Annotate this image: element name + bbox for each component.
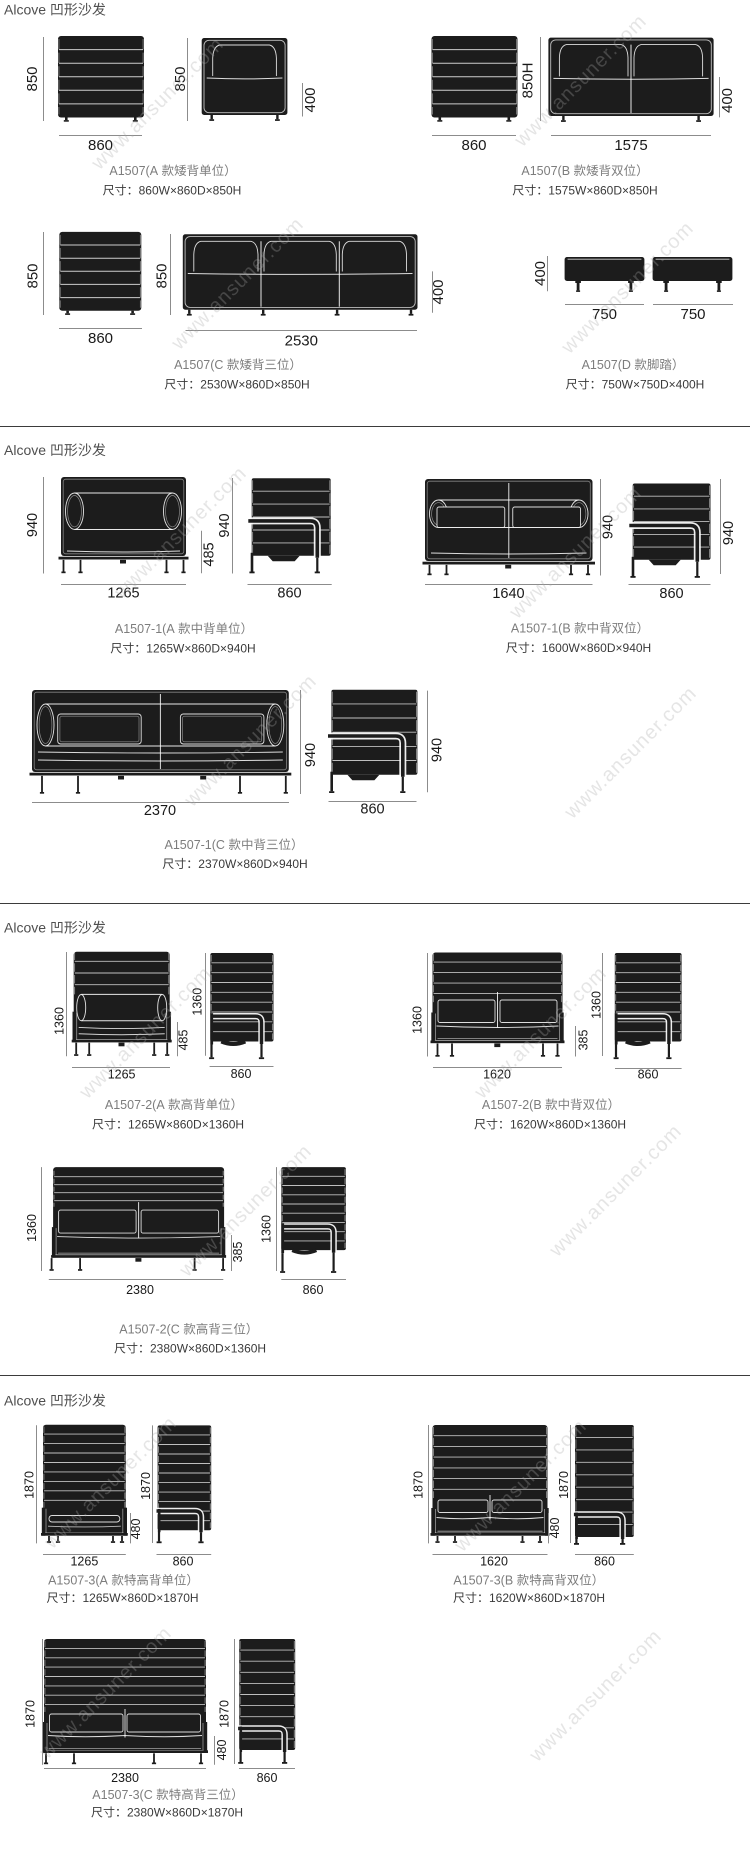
svg-text:2380W×860D×1360H: 2380W×860D×1360H (150, 1342, 266, 1356)
svg-text:860: 860 (88, 330, 113, 347)
svg-text:A1507(C: A1507(C (174, 358, 227, 372)
svg-text:1620W×860D×1870H: 1620W×860D×1870H (489, 1591, 605, 1605)
svg-text:A1507-1(A: A1507-1(A (115, 622, 178, 636)
svg-text:940: 940 (721, 521, 737, 545)
svg-text:1575W×860D×850H: 1575W×860D×850H (548, 184, 657, 198)
svg-text:1360: 1360 (53, 1007, 67, 1035)
svg-text:750: 750 (680, 306, 705, 323)
svg-text:860W×860D×850H: 860W×860D×850H (139, 184, 242, 198)
svg-text:A1507-2(A: A1507-2(A (105, 1098, 168, 1112)
svg-text:1600W×860D×940H: 1600W×860D×940H (542, 641, 651, 655)
svg-text:850: 850 (24, 263, 41, 288)
svg-text:860: 860 (638, 1068, 659, 1082)
svg-text:850H: 850H (519, 63, 536, 99)
svg-text:940: 940 (430, 738, 446, 762)
svg-text:1265W×860D×1360H: 1265W×860D×1360H (128, 1118, 244, 1132)
svg-text:2380: 2380 (111, 1771, 139, 1785)
svg-text:860: 860 (173, 1555, 194, 1569)
svg-text:1360: 1360 (25, 1214, 39, 1242)
svg-text:860: 860 (461, 137, 486, 154)
svg-text:385: 385 (577, 1030, 591, 1051)
svg-text:485: 485 (177, 1030, 191, 1051)
svg-text:750W×750D×400H: 750W×750D×400H (602, 378, 705, 392)
svg-text:Alcove: Alcove (4, 920, 50, 936)
svg-text:2370W×860D×940H: 2370W×860D×940H (198, 857, 307, 871)
svg-text:1265W×860D×1870H: 1265W×860D×1870H (83, 1591, 199, 1605)
svg-text:1620W×860D×1360H: 1620W×860D×1360H (510, 1118, 626, 1132)
svg-text:2530W×860D×850H: 2530W×860D×850H (200, 378, 309, 392)
svg-text:A1507-3(A: A1507-3(A (48, 1574, 111, 1588)
svg-text:940: 940 (25, 513, 41, 537)
svg-text:www.ansuner.com: www.ansuner.com (545, 1120, 687, 1262)
svg-text:860: 860 (659, 586, 683, 602)
svg-text:1265W×860D×940H: 1265W×860D×940H (146, 642, 255, 656)
svg-text:860: 860 (594, 1555, 615, 1569)
svg-text:1575: 1575 (614, 137, 647, 154)
svg-text:850: 850 (24, 66, 41, 91)
svg-text:1870: 1870 (23, 1471, 37, 1499)
svg-text:400: 400 (719, 88, 736, 113)
svg-text:www.ansuner.com: www.ansuner.com (525, 1625, 667, 1767)
svg-text:A1507(D: A1507(D (582, 358, 635, 372)
svg-text:A1507(B: A1507(B (521, 164, 573, 178)
svg-text:A1507-2(C: A1507-2(C (119, 1323, 183, 1337)
svg-text:400: 400 (302, 87, 319, 112)
svg-text:A1507(A: A1507(A (109, 164, 160, 178)
svg-text:1360: 1360 (260, 1215, 274, 1243)
svg-text:2370: 2370 (144, 803, 176, 819)
svg-text:A1507-3(B: A1507-3(B (453, 1574, 516, 1588)
svg-text:Alcove: Alcove (4, 1393, 50, 1409)
svg-text:385: 385 (231, 1242, 245, 1263)
svg-text:A1507-1(C: A1507-1(C (165, 838, 229, 852)
svg-text:860: 860 (257, 1771, 278, 1785)
svg-text:A1507-3(C: A1507-3(C (92, 1788, 156, 1802)
svg-text:1360: 1360 (410, 1006, 424, 1034)
svg-text:Alcove: Alcove (4, 2, 50, 18)
svg-text:400: 400 (430, 279, 447, 304)
svg-text:860: 860 (277, 586, 301, 602)
svg-text:940: 940 (303, 743, 319, 767)
svg-text:480: 480 (548, 1518, 562, 1539)
svg-text:485: 485 (202, 542, 218, 566)
svg-text:860: 860 (231, 1067, 252, 1081)
svg-text:www.ansuner.com: www.ansuner.com (560, 682, 702, 824)
svg-text:1870: 1870 (412, 1471, 426, 1499)
svg-text:480: 480 (215, 1740, 229, 1761)
svg-text:A1507-2(B: A1507-2(B (482, 1098, 545, 1112)
svg-text:940: 940 (217, 513, 233, 537)
svg-text:2530: 2530 (285, 333, 318, 350)
svg-text:Alcove: Alcove (4, 442, 50, 458)
svg-text:850: 850 (153, 263, 170, 288)
svg-text:2380W×860D×1870H: 2380W×860D×1870H (127, 1806, 243, 1820)
svg-text:1870: 1870 (557, 1471, 571, 1499)
svg-text:860: 860 (360, 802, 384, 818)
svg-text:1265: 1265 (70, 1555, 98, 1569)
svg-text:1870: 1870 (218, 1700, 232, 1728)
svg-text:860: 860 (303, 1283, 324, 1297)
svg-text:2380: 2380 (126, 1283, 154, 1297)
svg-text:1870: 1870 (24, 1700, 38, 1728)
svg-text:1620: 1620 (480, 1555, 508, 1569)
svg-text:1870: 1870 (139, 1472, 153, 1500)
svg-text:480: 480 (129, 1519, 143, 1540)
svg-text:400: 400 (532, 261, 549, 286)
